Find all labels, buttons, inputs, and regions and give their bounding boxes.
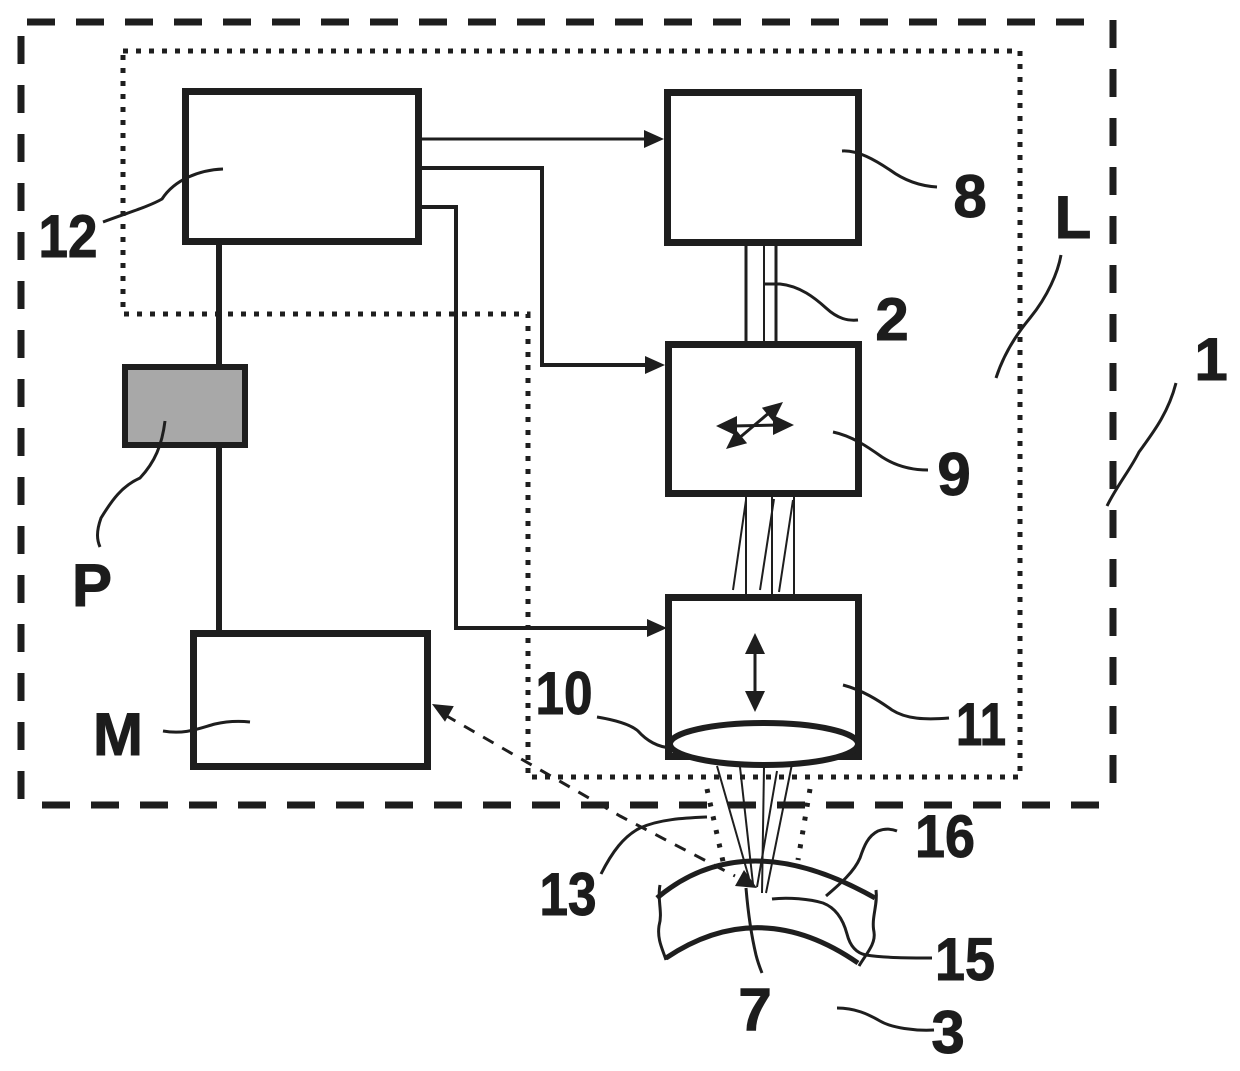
svg-text:7: 7: [738, 976, 771, 1043]
svg-text:P: P: [72, 552, 112, 619]
svg-text:L: L: [1055, 184, 1092, 251]
svg-text:12: 12: [39, 203, 98, 270]
svg-text:M: M: [93, 701, 143, 768]
svg-text:2: 2: [875, 286, 908, 353]
svg-text:11: 11: [956, 691, 1006, 758]
svg-text:15: 15: [935, 926, 995, 993]
svg-text:13: 13: [540, 861, 597, 928]
svg-text:3: 3: [931, 999, 964, 1066]
svg-text:10: 10: [536, 660, 593, 727]
svg-text:1: 1: [1194, 326, 1227, 393]
svg-text:9: 9: [937, 441, 970, 508]
svg-text:16: 16: [915, 803, 975, 870]
svg-text:8: 8: [953, 163, 986, 230]
